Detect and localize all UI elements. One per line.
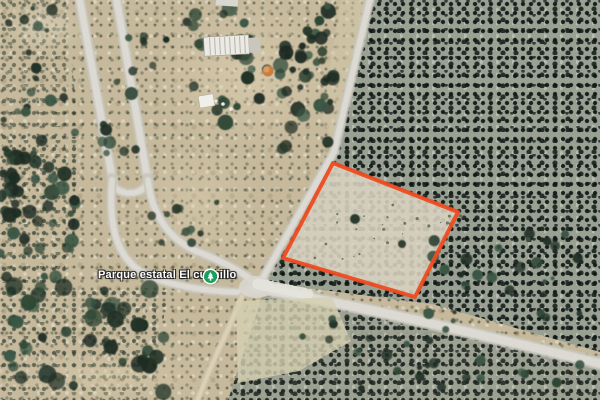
parcel-area[interactable]	[283, 163, 458, 297]
map-features	[0, 0, 600, 400]
satellite-map-canvas[interactable]: Parque estatal El cuchillo	[0, 0, 600, 400]
park-tree-icon[interactable]	[204, 270, 217, 283]
